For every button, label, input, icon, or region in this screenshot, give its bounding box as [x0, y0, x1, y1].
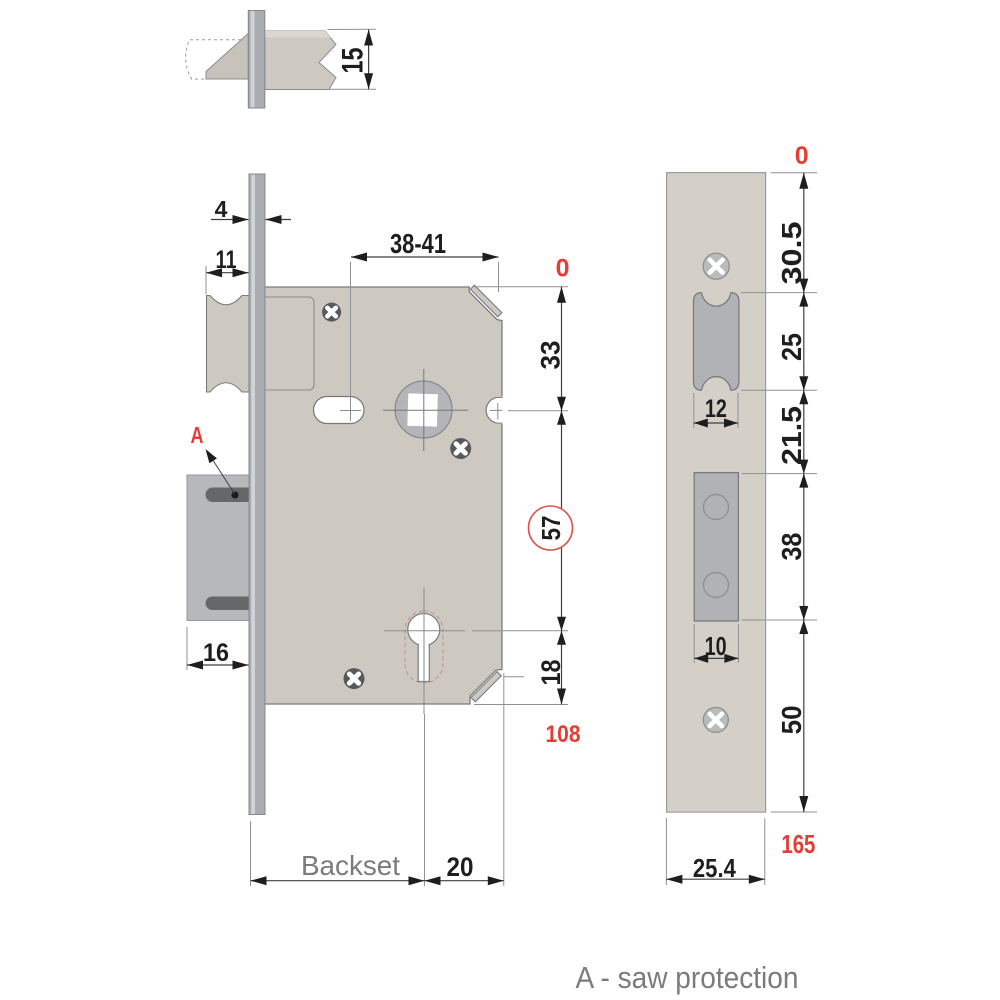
svg-text:4: 4	[215, 196, 228, 222]
svg-text:16: 16	[203, 639, 229, 667]
svg-text:25.4: 25.4	[693, 853, 736, 883]
svg-text:Backset: Backset	[301, 850, 400, 881]
svg-text:33: 33	[536, 341, 566, 370]
svg-text:18: 18	[536, 660, 566, 686]
svg-text:50: 50	[776, 705, 807, 734]
svg-text:38: 38	[776, 533, 807, 561]
svg-text:108: 108	[546, 721, 581, 748]
svg-text:0: 0	[795, 142, 809, 170]
svg-text:A: A	[191, 422, 204, 448]
svg-text:15: 15	[337, 48, 370, 74]
svg-text:A - saw protection: A - saw protection	[576, 960, 799, 995]
svg-text:57: 57	[536, 516, 566, 541]
svg-text:20: 20	[447, 852, 474, 882]
svg-text:21.5: 21.5	[776, 406, 807, 465]
svg-text:12: 12	[705, 395, 727, 423]
svg-text:165: 165	[781, 829, 815, 859]
svg-text:30.5: 30.5	[776, 222, 807, 285]
svg-text:0: 0	[556, 255, 570, 283]
svg-text:25: 25	[776, 333, 807, 361]
svg-text:38-41: 38-41	[390, 228, 446, 259]
